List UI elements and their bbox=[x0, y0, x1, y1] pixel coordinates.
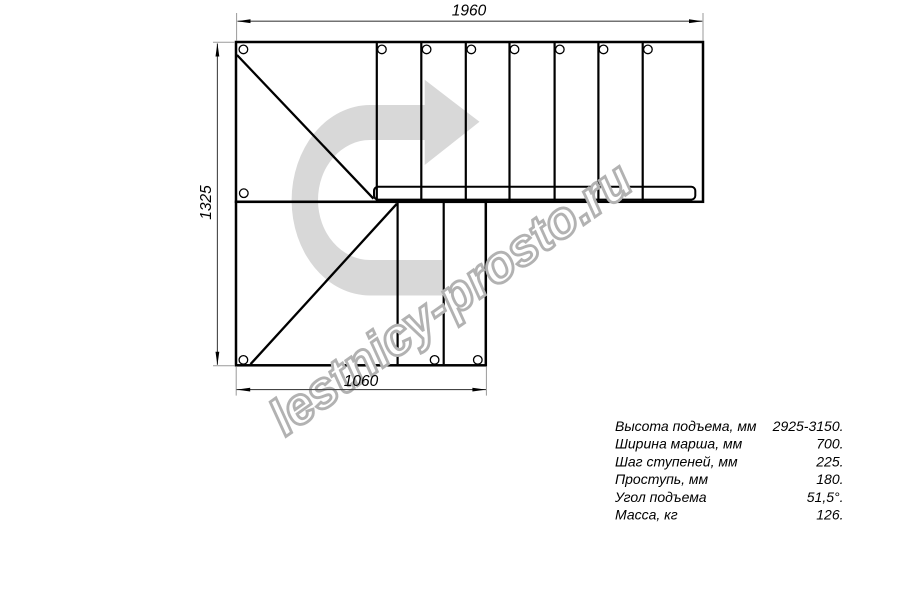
svg-text:126.: 126. bbox=[816, 507, 843, 523]
svg-text:1060: 1060 bbox=[344, 373, 379, 390]
svg-text:1325: 1325 bbox=[198, 185, 215, 220]
svg-text:2925-3150.: 2925-3150. bbox=[772, 418, 844, 434]
svg-text:Шаг ступеней, мм: Шаг ступеней, мм bbox=[615, 453, 738, 469]
svg-text:Высота подъема, мм: Высота подъема, мм bbox=[615, 418, 757, 434]
svg-text:1960: 1960 bbox=[452, 3, 487, 20]
svg-text:Масса, кг: Масса, кг bbox=[615, 507, 678, 523]
svg-text:225.: 225. bbox=[815, 453, 843, 469]
svg-text:180.: 180. bbox=[816, 471, 843, 487]
svg-text:Проступь, мм: Проступь, мм bbox=[615, 471, 709, 487]
svg-text:700.: 700. bbox=[816, 436, 843, 452]
svg-text:51,5°.: 51,5°. bbox=[807, 489, 844, 505]
svg-text:Угол подъема: Угол подъема bbox=[614, 489, 707, 505]
svg-text:Ширина марша, мм: Ширина марша, мм bbox=[615, 436, 743, 452]
